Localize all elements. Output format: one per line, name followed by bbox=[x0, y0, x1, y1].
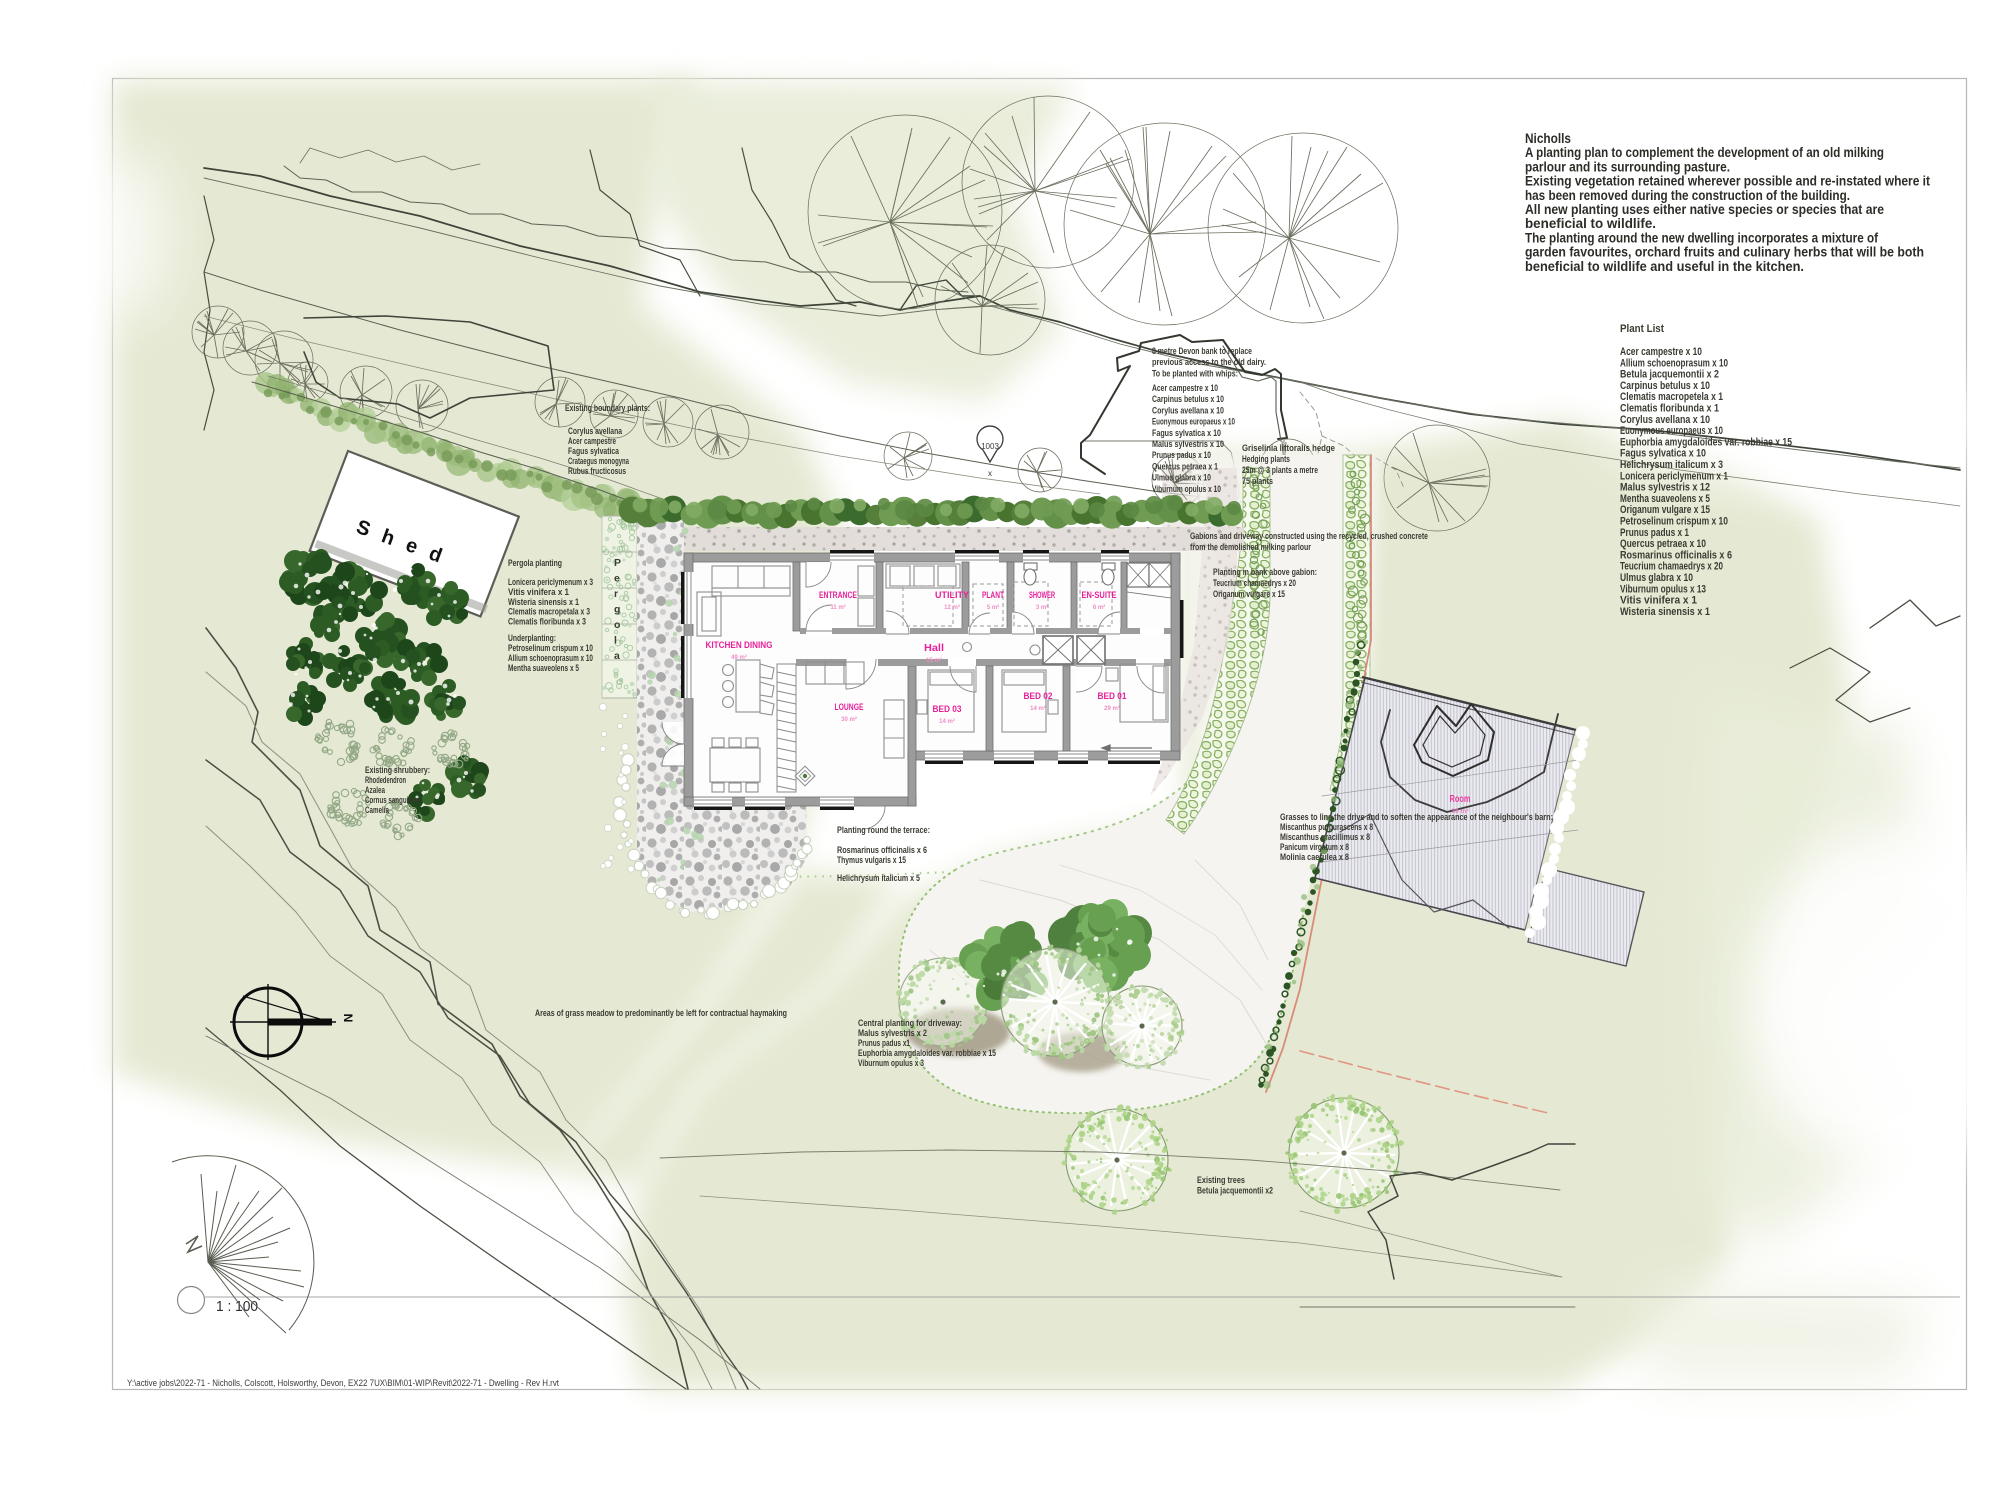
svg-text:Pergola planting: Pergola planting bbox=[508, 558, 562, 569]
svg-text:Room: Room bbox=[1450, 793, 1471, 805]
svg-text:Lonicera periclymenum x 1: Lonicera periclymenum x 1 bbox=[1620, 470, 1728, 482]
svg-text:8 metre Devon bank to replace: 8 metre Devon bank to replace bbox=[1152, 346, 1252, 357]
svg-text:Petroselinum crispum x 10: Petroselinum crispum x 10 bbox=[1620, 516, 1728, 528]
svg-text:r: r bbox=[614, 588, 618, 600]
svg-text:BED 03: BED 03 bbox=[933, 704, 962, 715]
svg-text:Planting in bank above gabion:: Planting in bank above gabion: bbox=[1213, 567, 1317, 578]
svg-text:Carpinus betulus x 10: Carpinus betulus x 10 bbox=[1620, 380, 1710, 392]
svg-text:Teucrium chamaedrys x 20: Teucrium chamaedrys x 20 bbox=[1620, 561, 1723, 573]
svg-text:Hall: Hall bbox=[924, 642, 944, 654]
svg-text:Planting round the terrace:: Planting round the terrace: bbox=[837, 825, 930, 836]
svg-text:from the demolished milking pa: from the demolished milking parlour bbox=[1190, 542, 1311, 553]
svg-text:Viburnum opulus x 10: Viburnum opulus x 10 bbox=[1152, 484, 1221, 495]
svg-text:Camelia: Camelia bbox=[365, 805, 389, 816]
svg-text:P: P bbox=[614, 557, 621, 569]
svg-text:e: e bbox=[614, 573, 620, 585]
svg-text:Gabions and driveway construct: Gabions and driveway constructed using t… bbox=[1190, 531, 1428, 542]
svg-text:Viburnum opulus x 13: Viburnum opulus x 13 bbox=[1620, 583, 1706, 595]
svg-text:KITCHEN DINING: KITCHEN DINING bbox=[706, 640, 773, 651]
svg-text:5 m²: 5 m² bbox=[987, 604, 999, 611]
svg-text:Acer campestre x 10: Acer campestre x 10 bbox=[1620, 346, 1702, 358]
svg-text:x: x bbox=[988, 469, 992, 478]
svg-text:o: o bbox=[614, 619, 620, 631]
svg-text:14 m²: 14 m² bbox=[1030, 705, 1046, 712]
svg-text:Malus sylvestris x 12: Malus sylvestris x 12 bbox=[1620, 482, 1710, 494]
svg-text:Areas of grass meadow to predo: Areas of grass meadow to predominantly b… bbox=[535, 1008, 787, 1019]
svg-text:l: l bbox=[614, 635, 617, 647]
svg-text:Teucrium chamaedrys x 20: Teucrium chamaedrys x 20 bbox=[1213, 578, 1296, 589]
svg-text:25m @ 3 plants a metre: 25m @ 3 plants a metre bbox=[1242, 465, 1318, 476]
svg-text:Vitis vinifera x 1: Vitis vinifera x 1 bbox=[1620, 595, 1697, 607]
svg-text:12 m²: 12 m² bbox=[944, 604, 960, 611]
svg-text:Euonymous europaeus x 10: Euonymous europaeus x 10 bbox=[1620, 425, 1723, 437]
svg-text:Corylus avellana x 10: Corylus avellana x 10 bbox=[1620, 414, 1710, 426]
svg-text:Clematis floribunda x 3: Clematis floribunda x 3 bbox=[508, 617, 586, 628]
svg-text:Betula jacquemontii x2: Betula jacquemontii x2 bbox=[1197, 1186, 1273, 1197]
svg-text:Mentha suaveolens x 5: Mentha suaveolens x 5 bbox=[1620, 493, 1710, 505]
svg-text:30 m²: 30 m² bbox=[841, 716, 857, 723]
svg-text:14 m²: 14 m² bbox=[939, 718, 955, 725]
svg-text:Euphorbia amygdaloides var. ro: Euphorbia amygdaloides var. robbiae x 15 bbox=[1620, 436, 1792, 448]
svg-text:Quercus petraea x 1: Quercus petraea x 1 bbox=[1152, 461, 1219, 472]
svg-text:BED 02: BED 02 bbox=[1024, 691, 1053, 702]
svg-text:6 m²: 6 m² bbox=[1093, 604, 1105, 611]
svg-text:Helichrysum italicum x 3: Helichrysum italicum x 3 bbox=[1620, 459, 1723, 471]
svg-text:15 m²: 15 m² bbox=[926, 657, 942, 664]
svg-text:N: N bbox=[341, 1014, 355, 1023]
svg-text:SHOWER: SHOWER bbox=[1029, 590, 1055, 601]
svg-text:Origanum vulgare x 15: Origanum vulgare x 15 bbox=[1213, 589, 1285, 600]
svg-text:Existing trees: Existing trees bbox=[1197, 1175, 1245, 1186]
svg-text:Ulmus glabra x 10: Ulmus glabra x 10 bbox=[1620, 572, 1693, 584]
svg-text:Thymus vulgaris x 15: Thymus vulgaris x 15 bbox=[837, 855, 907, 866]
svg-text:Griselinia littoralis hedge: Griselinia littoralis hedge bbox=[1242, 443, 1335, 454]
svg-text:Allium schoenoprasum x 10: Allium schoenoprasum x 10 bbox=[1620, 357, 1728, 369]
svg-text:previous access to the old dai: previous access to the old dairy. bbox=[1152, 357, 1266, 368]
svg-text:29 m²: 29 m² bbox=[1104, 705, 1120, 712]
svg-text:UTILITY: UTILITY bbox=[935, 590, 970, 601]
svg-text:Plant List: Plant List bbox=[1620, 323, 1664, 335]
svg-text:Carpinus betulus x 10: Carpinus betulus x 10 bbox=[1152, 394, 1224, 405]
svg-text:Clematis floribunda x 1: Clematis floribunda x 1 bbox=[1620, 403, 1719, 415]
svg-text:Fagus sylvatica x 10: Fagus sylvatica x 10 bbox=[1620, 448, 1706, 460]
svg-text:BED 01: BED 01 bbox=[1098, 691, 1128, 702]
svg-text:Hedging plants: Hedging plants bbox=[1242, 454, 1290, 465]
svg-text:g: g bbox=[614, 604, 620, 616]
svg-text:PLANT: PLANT bbox=[982, 590, 1004, 601]
svg-text:Acer campestre x 10: Acer campestre x 10 bbox=[1152, 383, 1218, 394]
svg-text:1003: 1003 bbox=[981, 442, 999, 451]
svg-text:LOUNGE: LOUNGE bbox=[835, 702, 864, 713]
svg-text:Fagus sylvatica x 10: Fagus sylvatica x 10 bbox=[1152, 428, 1221, 439]
svg-text:11 m²: 11 m² bbox=[830, 604, 845, 611]
svg-text:49 m²: 49 m² bbox=[731, 654, 747, 661]
svg-text:Molinia caerulea x 8: Molinia caerulea x 8 bbox=[1280, 852, 1349, 863]
svg-text:Euonymous europaeus x 10: Euonymous europaeus x 10 bbox=[1152, 417, 1235, 428]
svg-text:a: a bbox=[614, 650, 620, 662]
svg-text:Viburnum opulus x 3: Viburnum opulus x 3 bbox=[858, 1058, 924, 1069]
svg-text:Existing boundary plants:: Existing boundary plants: bbox=[565, 403, 650, 414]
svg-text:Clematis macropetela x 1: Clematis macropetela x 1 bbox=[1620, 391, 1723, 403]
svg-text:Ulmus glabra x 10: Ulmus glabra x 10 bbox=[1152, 473, 1211, 484]
svg-text:To be planted with whips:: To be planted with whips: bbox=[1152, 368, 1238, 379]
svg-text:Rubus fructicosus: Rubus fructicosus bbox=[568, 466, 626, 477]
svg-text:ENTRANCE: ENTRANCE bbox=[819, 590, 857, 601]
svg-text:Helichrysum italicum x 5: Helichrysum italicum x 5 bbox=[837, 873, 921, 884]
svg-text:Y:\active jobs\2022-71 - Nicho: Y:\active jobs\2022-71 - Nicholls, Colsc… bbox=[127, 1378, 559, 1389]
svg-text:75 plants: 75 plants bbox=[1242, 476, 1273, 487]
svg-text:Prunus padus x 10: Prunus padus x 10 bbox=[1152, 450, 1211, 461]
svg-text:beneficial to wildlife and use: beneficial to wildlife and useful in the… bbox=[1525, 258, 1804, 274]
svg-text:EN-SUITE: EN-SUITE bbox=[1082, 590, 1117, 601]
svg-text:Mentha suaveolens x 5: Mentha suaveolens x 5 bbox=[508, 663, 579, 674]
svg-text:Origanum vulgare x 15: Origanum vulgare x 15 bbox=[1620, 504, 1710, 516]
svg-text:Wisteria sinensis x 1: Wisteria sinensis x 1 bbox=[1620, 606, 1710, 618]
svg-text:Quercus petraea x 10: Quercus petraea x 10 bbox=[1620, 538, 1706, 550]
svg-text:3 m²: 3 m² bbox=[1036, 604, 1048, 611]
svg-text:Prunus padus x 1: Prunus padus x 1 bbox=[1620, 527, 1689, 539]
svg-text:Malus sylvestris x 10: Malus sylvestris x 10 bbox=[1152, 439, 1224, 450]
svg-text:Rosmarinus officinalis x 6: Rosmarinus officinalis x 6 bbox=[1620, 549, 1732, 561]
svg-text:Corylus avellana x 10: Corylus avellana x 10 bbox=[1152, 405, 1224, 416]
svg-text:Betula jacquemontii x 2: Betula jacquemontii x 2 bbox=[1620, 369, 1719, 381]
